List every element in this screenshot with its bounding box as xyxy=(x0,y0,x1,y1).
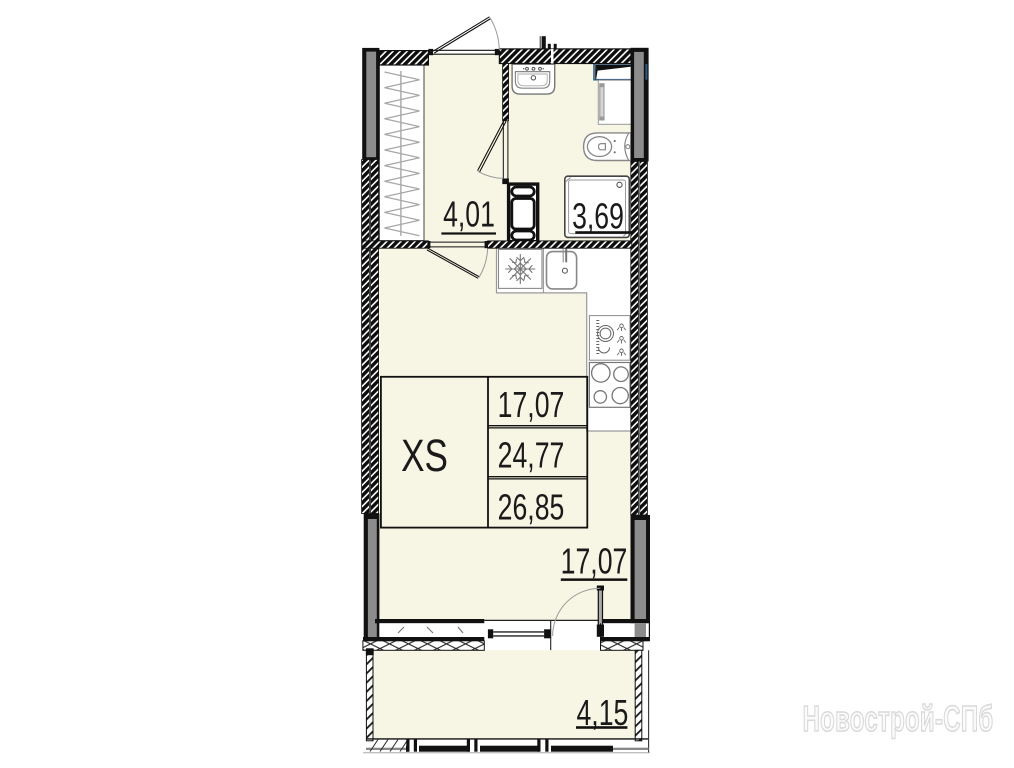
svg-text:24,77: 24,77 xyxy=(498,435,565,476)
svg-text:17,07: 17,07 xyxy=(498,384,565,425)
svg-text:17,07: 17,07 xyxy=(561,541,628,582)
svg-text:XS: XS xyxy=(401,430,448,481)
svg-text:Новострой-СПб: Новострой-СПб xyxy=(803,698,994,739)
svg-text:4,01: 4,01 xyxy=(443,194,495,235)
svg-text:26,85: 26,85 xyxy=(498,487,565,528)
svg-text:3,69: 3,69 xyxy=(572,196,624,237)
